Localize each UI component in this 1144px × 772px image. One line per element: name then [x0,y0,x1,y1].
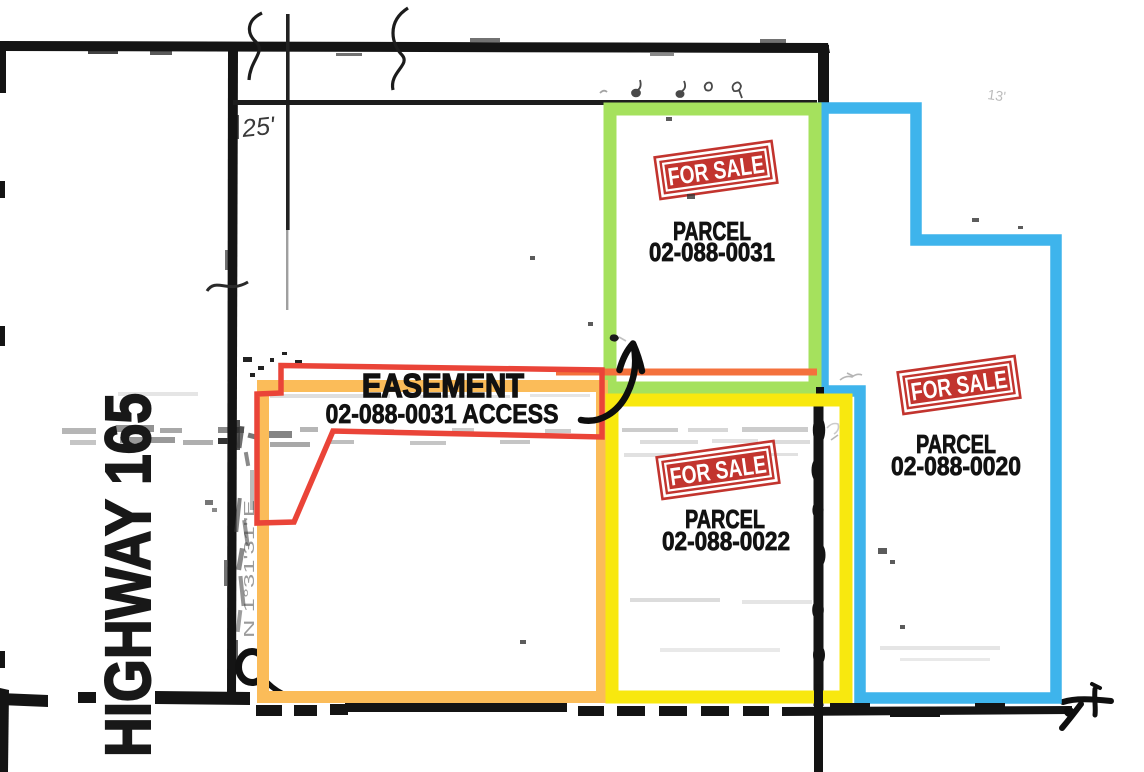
svg-text:HIGHWAY 165: HIGHWAY 165 [92,393,164,757]
svg-text:25': 25' [240,112,278,143]
svg-text:02-088-0031 ACCESS: 02-088-0031 ACCESS [326,399,559,429]
svg-text:02-088-0022: 02-088-0022 [662,526,790,556]
svg-text:02-088-0020: 02-088-0020 [891,451,1021,481]
svg-text:13': 13' [987,86,1007,104]
svg-text:02-088-0031: 02-088-0031 [649,237,775,267]
